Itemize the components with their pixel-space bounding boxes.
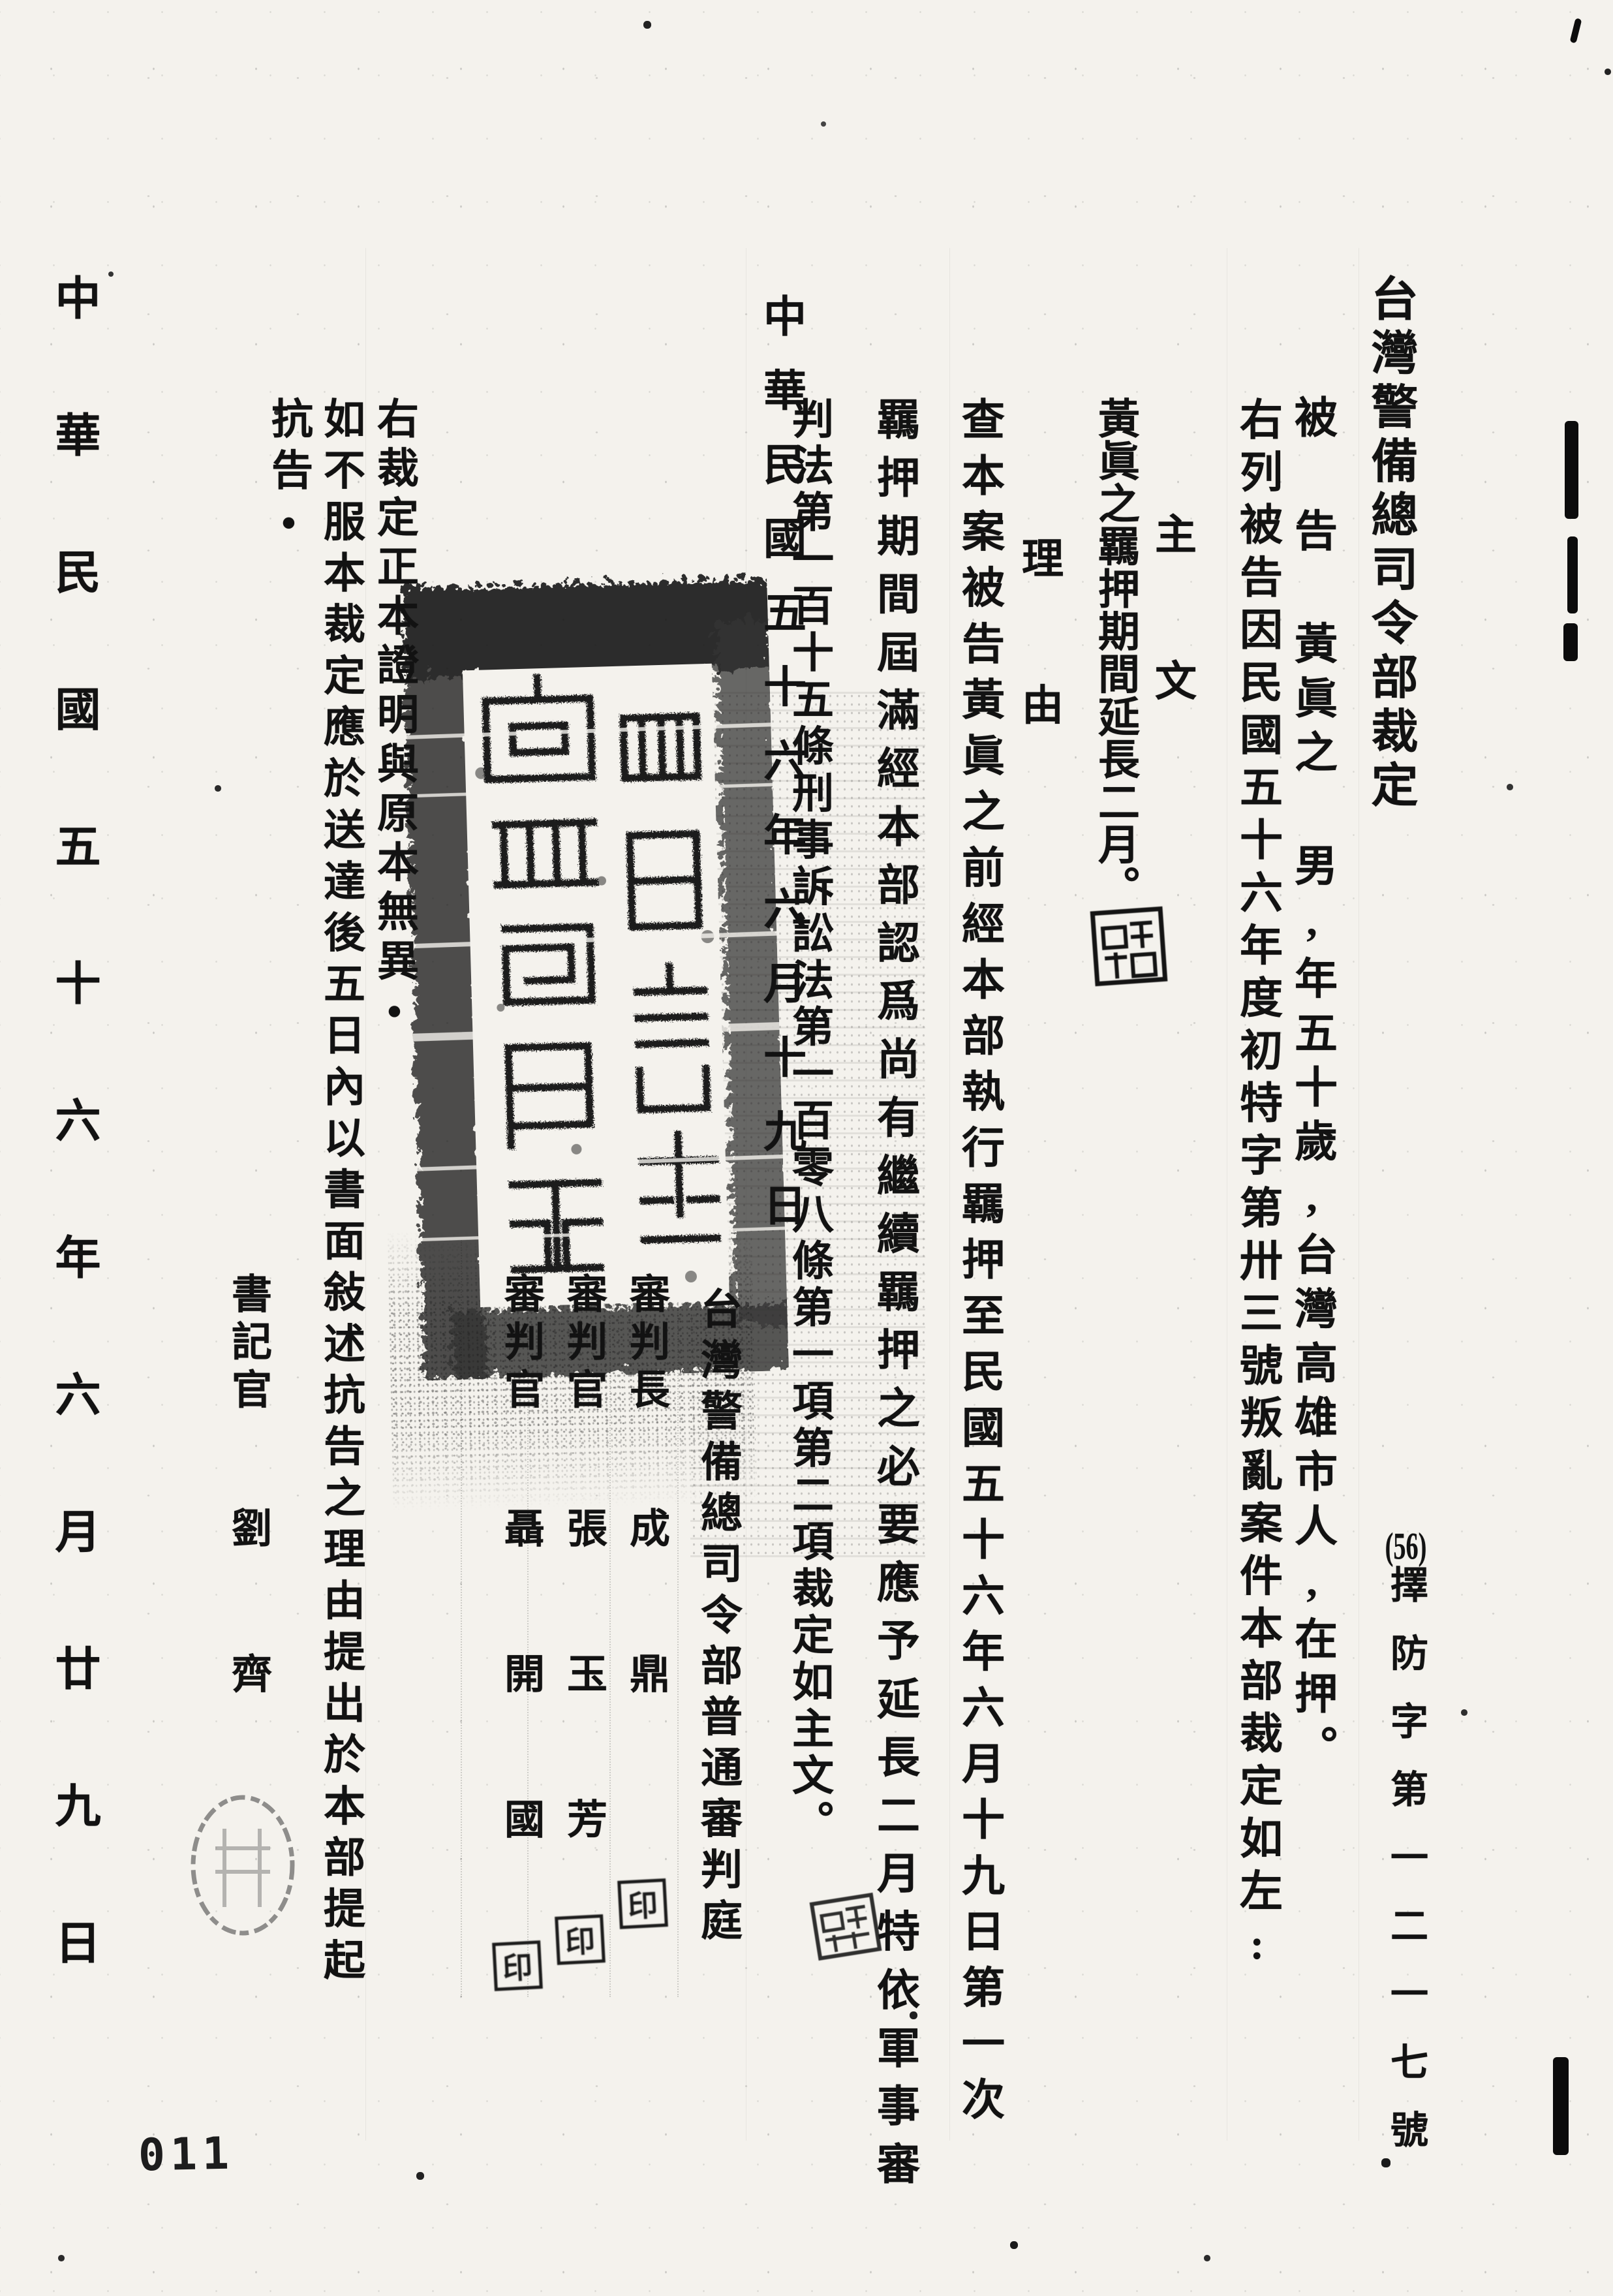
- verification-seal-stamp: [808, 1892, 882, 1962]
- judge-name: 張 玉 芳: [561, 1507, 605, 1869]
- scan-artifact-bar: [1567, 536, 1578, 613]
- scan-artifact-bar: [1570, 18, 1582, 43]
- main-text: 黃眞之羈押期間延長二月。: [1085, 397, 1145, 908]
- presiding-judge-seal-stamp: 印: [617, 1878, 668, 1929]
- decision-date: 中華民國五十六年六月十九日: [749, 294, 812, 1257]
- clerk-line: 書記官劉 齊: [218, 1273, 277, 1724]
- document-title: 台灣警備總司令部裁定: [1356, 274, 1424, 814]
- scanned-ruling-page: 台灣警備總司令部裁定 (56)擇防字第一二一七號 被 告 黃眞之 男,年五十歲,…: [0, 0, 1613, 2296]
- scan-artifact-bar: [1563, 623, 1578, 661]
- clerk-title: 書記官: [225, 1273, 269, 1416]
- judge-name: 聶 開 國: [498, 1507, 542, 1869]
- reason-header: 理 由: [1009, 536, 1069, 754]
- presiding-judge-name: 成 鼎: [623, 1507, 668, 1724]
- case-number-year: (56): [1385, 1527, 1427, 1565]
- judge-seal-stamp: 印: [492, 1940, 543, 1991]
- judge-line: 審判官聶 開 國: [491, 1273, 549, 1869]
- case-preamble: 右列被告因民國五十六年度初特字第卅三號叛亂案件本部裁定如左:: [1225, 397, 1288, 1978]
- ink-speckles: [0, 0, 3, 3]
- presiding-judge-line: 審判長成 鼎: [616, 1273, 675, 1724]
- case-number: (56)擇防字第一二一七號: [1378, 1527, 1433, 2179]
- page-number: 011: [138, 2128, 234, 2181]
- judge-title: 審判官: [561, 1273, 605, 1416]
- case-number-text: 擇防字第一二一七號: [1385, 1565, 1427, 2179]
- official-seal-stamp: [397, 569, 789, 1380]
- scan-artifact-bar: [1553, 2057, 1569, 2155]
- reason-line-1: 查本案被告黃眞之前經本部執行羈押至民國五十六年六月十九日第一次: [947, 397, 1010, 2133]
- certification-line: 右裁定正本證明與原本無異•: [364, 397, 424, 1042]
- judge-line: 審判官張 玉 芳: [553, 1273, 612, 1869]
- clerk-name: 劉 齊: [225, 1507, 269, 1724]
- judge-seal-stamp: 印: [555, 1914, 606, 1965]
- main-text-header: 主 文: [1142, 512, 1202, 730]
- appeal-notice-line-2: 抗告•: [258, 397, 318, 555]
- court-name: 台灣警備總司令部普通審判庭: [688, 1287, 748, 1949]
- judge-title: 審判官: [498, 1273, 542, 1416]
- scan-artifact-bar: [1565, 421, 1578, 519]
- defendant-line: 被 告 黃眞之 男,年五十歲,台灣高雄市人,在押。: [1280, 395, 1343, 1779]
- service-date: 中華民國五十六年六月廿九日: [40, 274, 106, 2056]
- presiding-judge-title: 審判長: [623, 1273, 668, 1416]
- approval-seal-stamp: [1090, 906, 1168, 987]
- clerk-round-stamp: [187, 1790, 299, 1941]
- appeal-notice-line-1: 如不服本裁定應於送達後五日內以書面敍述抗告之理由提出於本部提起: [311, 397, 371, 1989]
